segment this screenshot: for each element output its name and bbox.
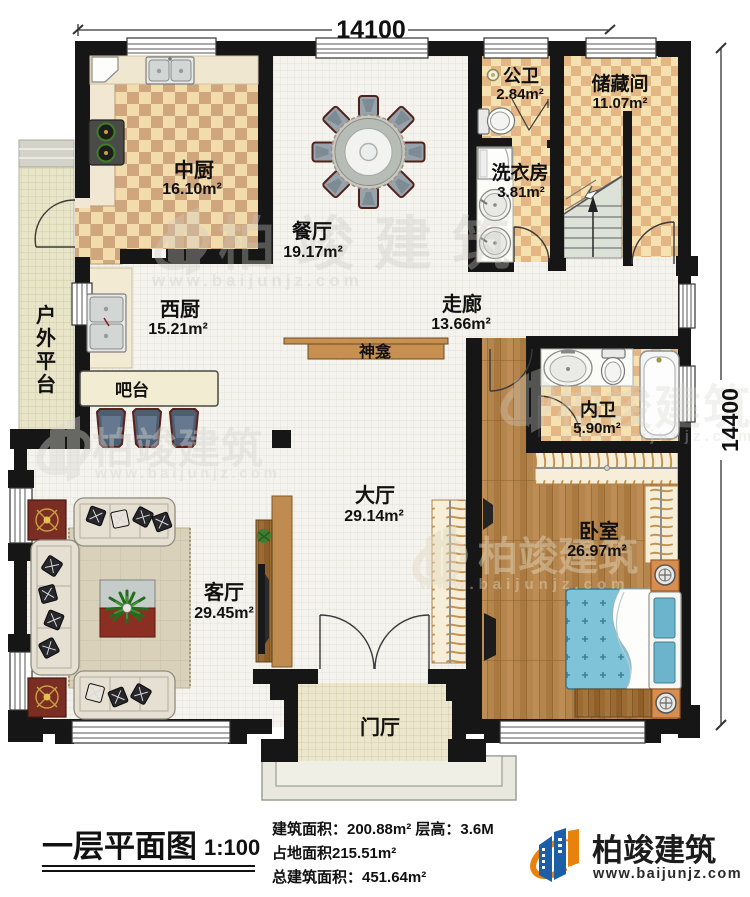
svg-text:29.45m²: 29.45m² — [194, 605, 254, 622]
svg-text:餐厅: 餐厅 — [292, 219, 332, 243]
svg-text:3.81m²: 3.81m² — [497, 184, 545, 201]
svg-text:走廊: 走廊 — [442, 292, 482, 316]
svg-text:卧室: 卧室 — [579, 519, 619, 543]
svg-text:19.17m²: 19.17m² — [283, 244, 343, 261]
svg-text:西厨: 西厨 — [160, 299, 200, 321]
svg-text:26.97m²: 26.97m² — [567, 543, 627, 560]
svg-text:建筑面积：200.88m² 层高：3.6M: 建筑面积：200.88m² 层高：3.6M — [272, 820, 494, 838]
svg-text:www.baijunjz.com: www.baijunjz.com — [592, 866, 742, 882]
svg-text:www.baijunjz.com: www.baijunjz.com — [419, 576, 629, 593]
svg-text:外: 外 — [36, 326, 56, 350]
svg-text:公卫: 公卫 — [503, 66, 539, 86]
svg-text:14400: 14400 — [717, 388, 743, 452]
svg-text:洗衣房: 洗衣房 — [491, 161, 548, 184]
svg-text:一层平面图: 一层平面图 — [42, 829, 197, 864]
svg-text:占地面积215.51m²: 占地面积215.51m² — [272, 844, 396, 862]
svg-text:15.21m²: 15.21m² — [148, 321, 208, 338]
svg-text:1:100: 1:100 — [204, 835, 260, 860]
svg-text:11.07m²: 11.07m² — [592, 95, 647, 112]
svg-text:柏竣建筑: 柏竣建筑 — [218, 212, 530, 277]
svg-text:总建筑面积：451.64m²: 总建筑面积：451.64m² — [272, 868, 426, 886]
svg-text:台: 台 — [36, 372, 56, 396]
svg-text:门厅: 门厅 — [360, 715, 400, 739]
svg-text:大厅: 大厅 — [355, 484, 395, 507]
svg-text:柏竣建筑: 柏竣建筑 — [592, 833, 716, 868]
svg-text:户: 户 — [36, 303, 56, 327]
svg-text:客厅: 客厅 — [203, 580, 244, 604]
svg-text:神龛: 神龛 — [359, 342, 392, 361]
svg-text:平: 平 — [36, 351, 56, 373]
svg-text:2.84m²: 2.84m² — [496, 86, 544, 103]
svg-text:5.90m²: 5.90m² — [573, 420, 621, 437]
svg-text:中厨: 中厨 — [174, 158, 214, 182]
svg-text:14100: 14100 — [336, 16, 406, 44]
svg-text:内卫: 内卫 — [580, 399, 616, 420]
svg-text:16.10m²: 16.10m² — [162, 181, 222, 198]
svg-text:29.14m²: 29.14m² — [344, 508, 404, 525]
svg-text:吧台: 吧台 — [115, 380, 149, 400]
svg-text:www.baijunjz.com: www.baijunjz.com — [151, 271, 363, 290]
svg-text:储藏间: 储藏间 — [591, 72, 648, 95]
svg-text:13.66m²: 13.66m² — [431, 316, 491, 333]
svg-text:www.baijunjz.com: www.baijunjz.com — [94, 465, 280, 482]
